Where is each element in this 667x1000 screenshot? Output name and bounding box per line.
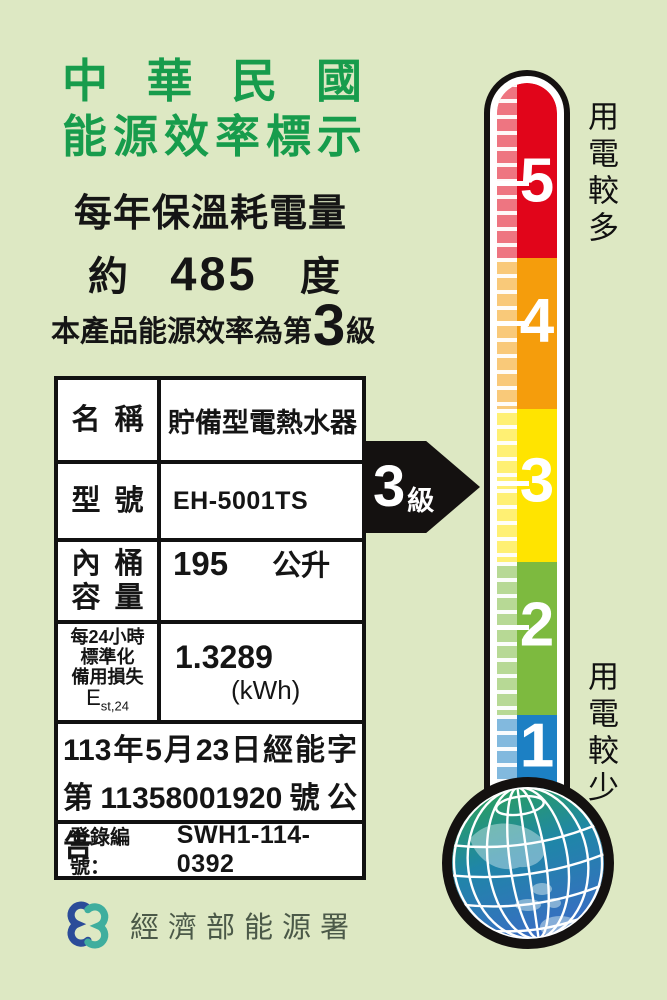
tick-strip: [497, 83, 517, 258]
announcement-line1: 113年5月23日經能字: [63, 727, 357, 775]
standby-label-line3: 備用損失: [66, 667, 150, 687]
standby-label-line2: 標準化: [66, 647, 150, 667]
metric-title: 每年保溫耗電量: [74, 182, 346, 237]
energy-efficiency-label: 中華民國 能源效率標示 每年保溫耗電量 約 485 度 本產品能源效率為第 3 …: [0, 0, 667, 1000]
level-5-number: 5: [517, 146, 557, 217]
row-standby-value-cell: 1.3289 (kWh): [161, 624, 362, 720]
level-4-segment: 4: [497, 258, 557, 409]
table-row-standby-loss: 每24小時 標準化 備用損失 Est,24 1.3289 (kWh): [58, 624, 362, 724]
tick-strip: [497, 562, 517, 715]
row-model-value: EH-5001TS: [161, 464, 362, 538]
grade-arrow-value: 3: [373, 458, 405, 516]
level-1-number: 1: [517, 715, 557, 781]
rating-prefix: 本產品能源效率為第: [51, 312, 312, 352]
level-3-segment: 3: [497, 409, 557, 562]
table-row-model: 型號 EH-5001TS: [58, 464, 362, 542]
row-capacity-label-line2: 容量: [72, 581, 144, 615]
globe-icon: [442, 777, 614, 949]
row-model-label-cell: 型號: [58, 464, 161, 538]
grade-arrow-suffix: 級: [407, 479, 434, 518]
footer: 經濟部能源署: [60, 898, 358, 952]
capacity-unit: 公升: [272, 542, 330, 584]
rating-grade: 3: [313, 300, 345, 352]
approx-prefix: 約: [88, 244, 128, 302]
row-capacity-label-cell: 內桶 容量: [58, 542, 161, 620]
standby-loss-unit: (kWh): [231, 675, 300, 705]
level-4-number: 4: [517, 286, 557, 357]
row-standby-label-cell: 每24小時 標準化 備用損失 Est,24: [58, 624, 161, 720]
level-2-number: 2: [517, 589, 557, 660]
row-model-label: 型號: [72, 484, 144, 518]
standby-loss-value: 1.3289: [175, 639, 273, 675]
energy-administration-logo-icon: [60, 898, 114, 952]
level-3-number: 3: [517, 445, 557, 516]
row-capacity-value-cell: 195 公升: [161, 542, 362, 620]
table-row-name: 名稱 貯備型電熱水器: [58, 380, 362, 464]
thermometer-tube: 5 4 3 2 1: [484, 70, 570, 818]
country-title: 中華民國: [62, 56, 362, 106]
rating-suffix: 級: [346, 312, 375, 352]
thermometer-scale: 5 4 3 2 1: [497, 83, 557, 818]
registration-number: SWH1-114-0392: [177, 821, 362, 879]
standby-symbol: Est,24: [86, 687, 129, 717]
rating-statement: 本產品能源效率為第 3 級: [51, 300, 391, 352]
agency-name: 經濟部能源署: [130, 904, 358, 946]
registration-row: 登錄編號： SWH1-114-0392: [58, 824, 362, 876]
tick-strip: [497, 258, 517, 409]
row-name-value: 貯備型電熱水器: [161, 380, 362, 460]
annual-consumption-value: 485: [170, 246, 257, 301]
row-name-label: 名稱: [72, 403, 144, 437]
announcement: 113年5月23日經能字 第11358001920號公告: [58, 724, 362, 824]
row-name-label-cell: 名稱: [58, 380, 161, 460]
label-title: 能源效率標示: [62, 112, 362, 162]
row-capacity-label-line1: 內桶: [72, 547, 144, 581]
table-row-capacity: 內桶 容量 195 公升: [58, 542, 362, 624]
level-2-segment: 2: [497, 562, 557, 715]
level-5-segment: 5: [497, 83, 557, 258]
spec-table: 名稱 貯備型電熱水器 型號 EH-5001TS 內桶 容量 195 公升 每24…: [54, 376, 366, 880]
capacity-value: 195: [173, 545, 228, 583]
high-usage-label: 用電較多: [582, 100, 618, 248]
registration-label: 登錄編號：: [70, 821, 167, 879]
annual-consumption-row: 約 485 度: [60, 244, 356, 302]
standby-label-line1: 每24小時: [66, 627, 150, 647]
grade-arrow: 3 級: [363, 441, 480, 533]
